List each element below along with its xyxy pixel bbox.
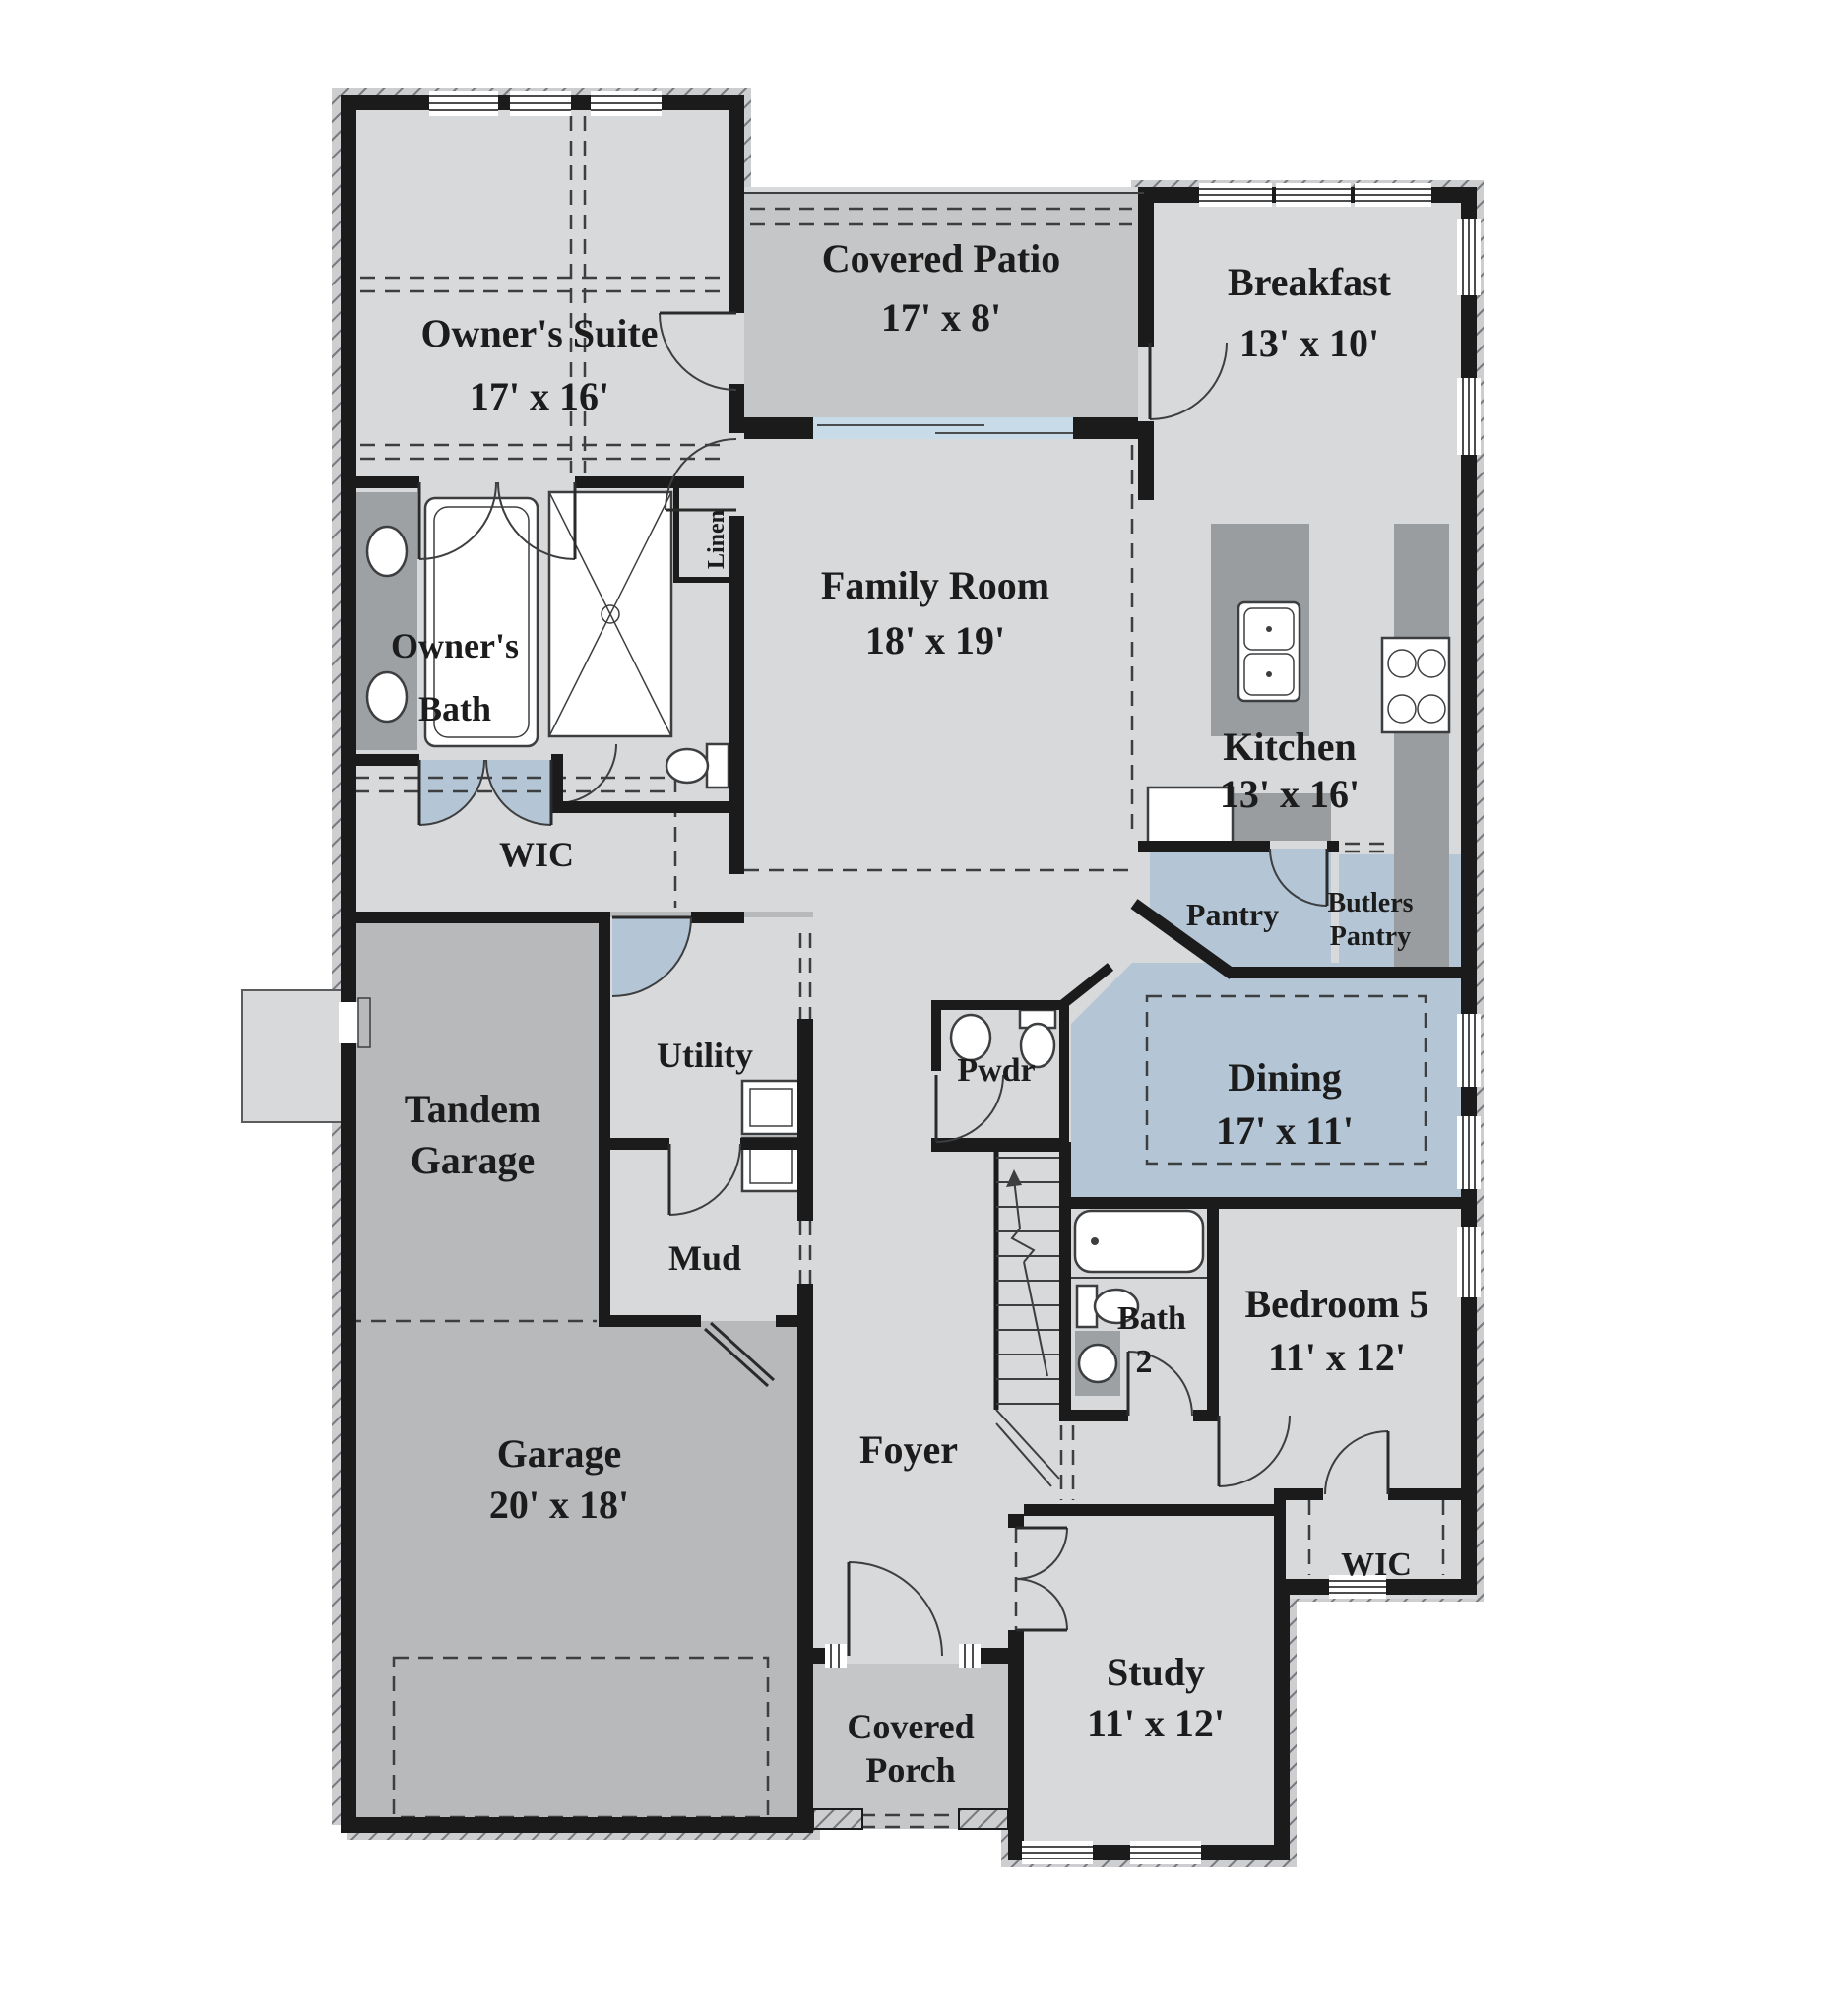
room-label-mud: Mud — [668, 1238, 741, 1278]
cooktop-icon — [1382, 638, 1449, 732]
floor-plan: Owner's Suite 17' x 16' Covered Patio 17… — [0, 0, 1839, 2016]
room-label-pantry: Pantry — [1186, 897, 1279, 932]
room-label-covered-patio: Covered Patio — [822, 236, 1061, 281]
room-dims-dining: 17' x 11' — [1216, 1108, 1354, 1153]
foyer-area — [813, 1142, 1024, 1664]
room-dims-garage: 20' x 18' — [489, 1482, 629, 1527]
window — [1130, 1841, 1201, 1864]
island-sink-icon — [1238, 602, 1300, 701]
room-dims-study: 11' x 12' — [1087, 1701, 1225, 1745]
room-label-bath2-2: 2 — [1136, 1344, 1153, 1380]
room-label-family-room: Family Room — [821, 563, 1049, 607]
window — [1457, 1116, 1481, 1189]
shower-icon — [549, 492, 671, 736]
room-label-tandem-2: Garage — [411, 1138, 536, 1182]
window — [510, 91, 571, 116]
room-label-owners-bath-2: Bath — [418, 689, 491, 728]
window — [1199, 183, 1272, 207]
sink-icon — [1079, 1345, 1116, 1382]
sidelight-window — [959, 1644, 981, 1668]
window — [591, 91, 662, 116]
room-label-butlers-2: Pantry — [1330, 921, 1411, 952]
room-dims-bedroom5: 11' x 12' — [1268, 1335, 1406, 1379]
room-label-utility: Utility — [657, 1036, 753, 1075]
room-label-tandem-1: Tandem — [405, 1087, 541, 1131]
room-label-foyer: Foyer — [859, 1427, 958, 1472]
room-label-linen: Linen — [704, 510, 729, 569]
room-dims-covered-patio: 17' x 8' — [881, 295, 1001, 340]
window — [1022, 1841, 1093, 1864]
room-label-breakfast: Breakfast — [1228, 260, 1392, 304]
covered-porch-area — [813, 1664, 1008, 1829]
room-label-owners-suite: Owner's Suite — [420, 311, 658, 355]
window — [1355, 183, 1431, 207]
window — [1276, 183, 1351, 207]
sliding-glass-door — [744, 417, 1138, 439]
room-label-pwdr: Pwdr — [957, 1052, 1035, 1089]
sink-icon — [367, 672, 407, 722]
sidelight-window — [825, 1644, 847, 1668]
room-label-wic-bedroom5: WIC — [1341, 1546, 1412, 1583]
window — [1457, 1227, 1481, 1297]
sink-icon — [367, 527, 407, 576]
room-label-bedroom5: Bedroom 5 — [1244, 1282, 1428, 1326]
room-label-bath2-1: Bath — [1117, 1300, 1186, 1337]
window — [1457, 1014, 1481, 1087]
toilet-icon — [666, 744, 729, 787]
room-dims-family-room: 18' x 19' — [865, 618, 1005, 662]
window — [1457, 219, 1481, 295]
window — [1457, 378, 1481, 455]
room-label-wic-owners: WIC — [499, 835, 574, 874]
room-label-porch-2: Porch — [865, 1750, 955, 1790]
room-label-kitchen: Kitchen — [1223, 724, 1357, 769]
room-label-dining: Dining — [1228, 1055, 1342, 1100]
room-dims-kitchen: 13' x 16' — [1220, 772, 1360, 816]
window — [429, 91, 498, 116]
floor-plan-canvas: Owner's Suite 17' x 16' Covered Patio 17… — [0, 0, 1839, 2016]
room-label-owners-bath-1: Owner's — [391, 626, 519, 665]
room-dims-breakfast: 13' x 10' — [1239, 321, 1379, 365]
room-label-porch-1: Covered — [847, 1707, 974, 1746]
room-label-butlers-1: Butlers — [1327, 888, 1413, 918]
room-label-study: Study — [1107, 1650, 1205, 1694]
room-label-garage: Garage — [497, 1431, 622, 1476]
exterior-pad — [242, 990, 345, 1122]
room-dims-owners-suite: 17' x 16' — [470, 374, 609, 418]
